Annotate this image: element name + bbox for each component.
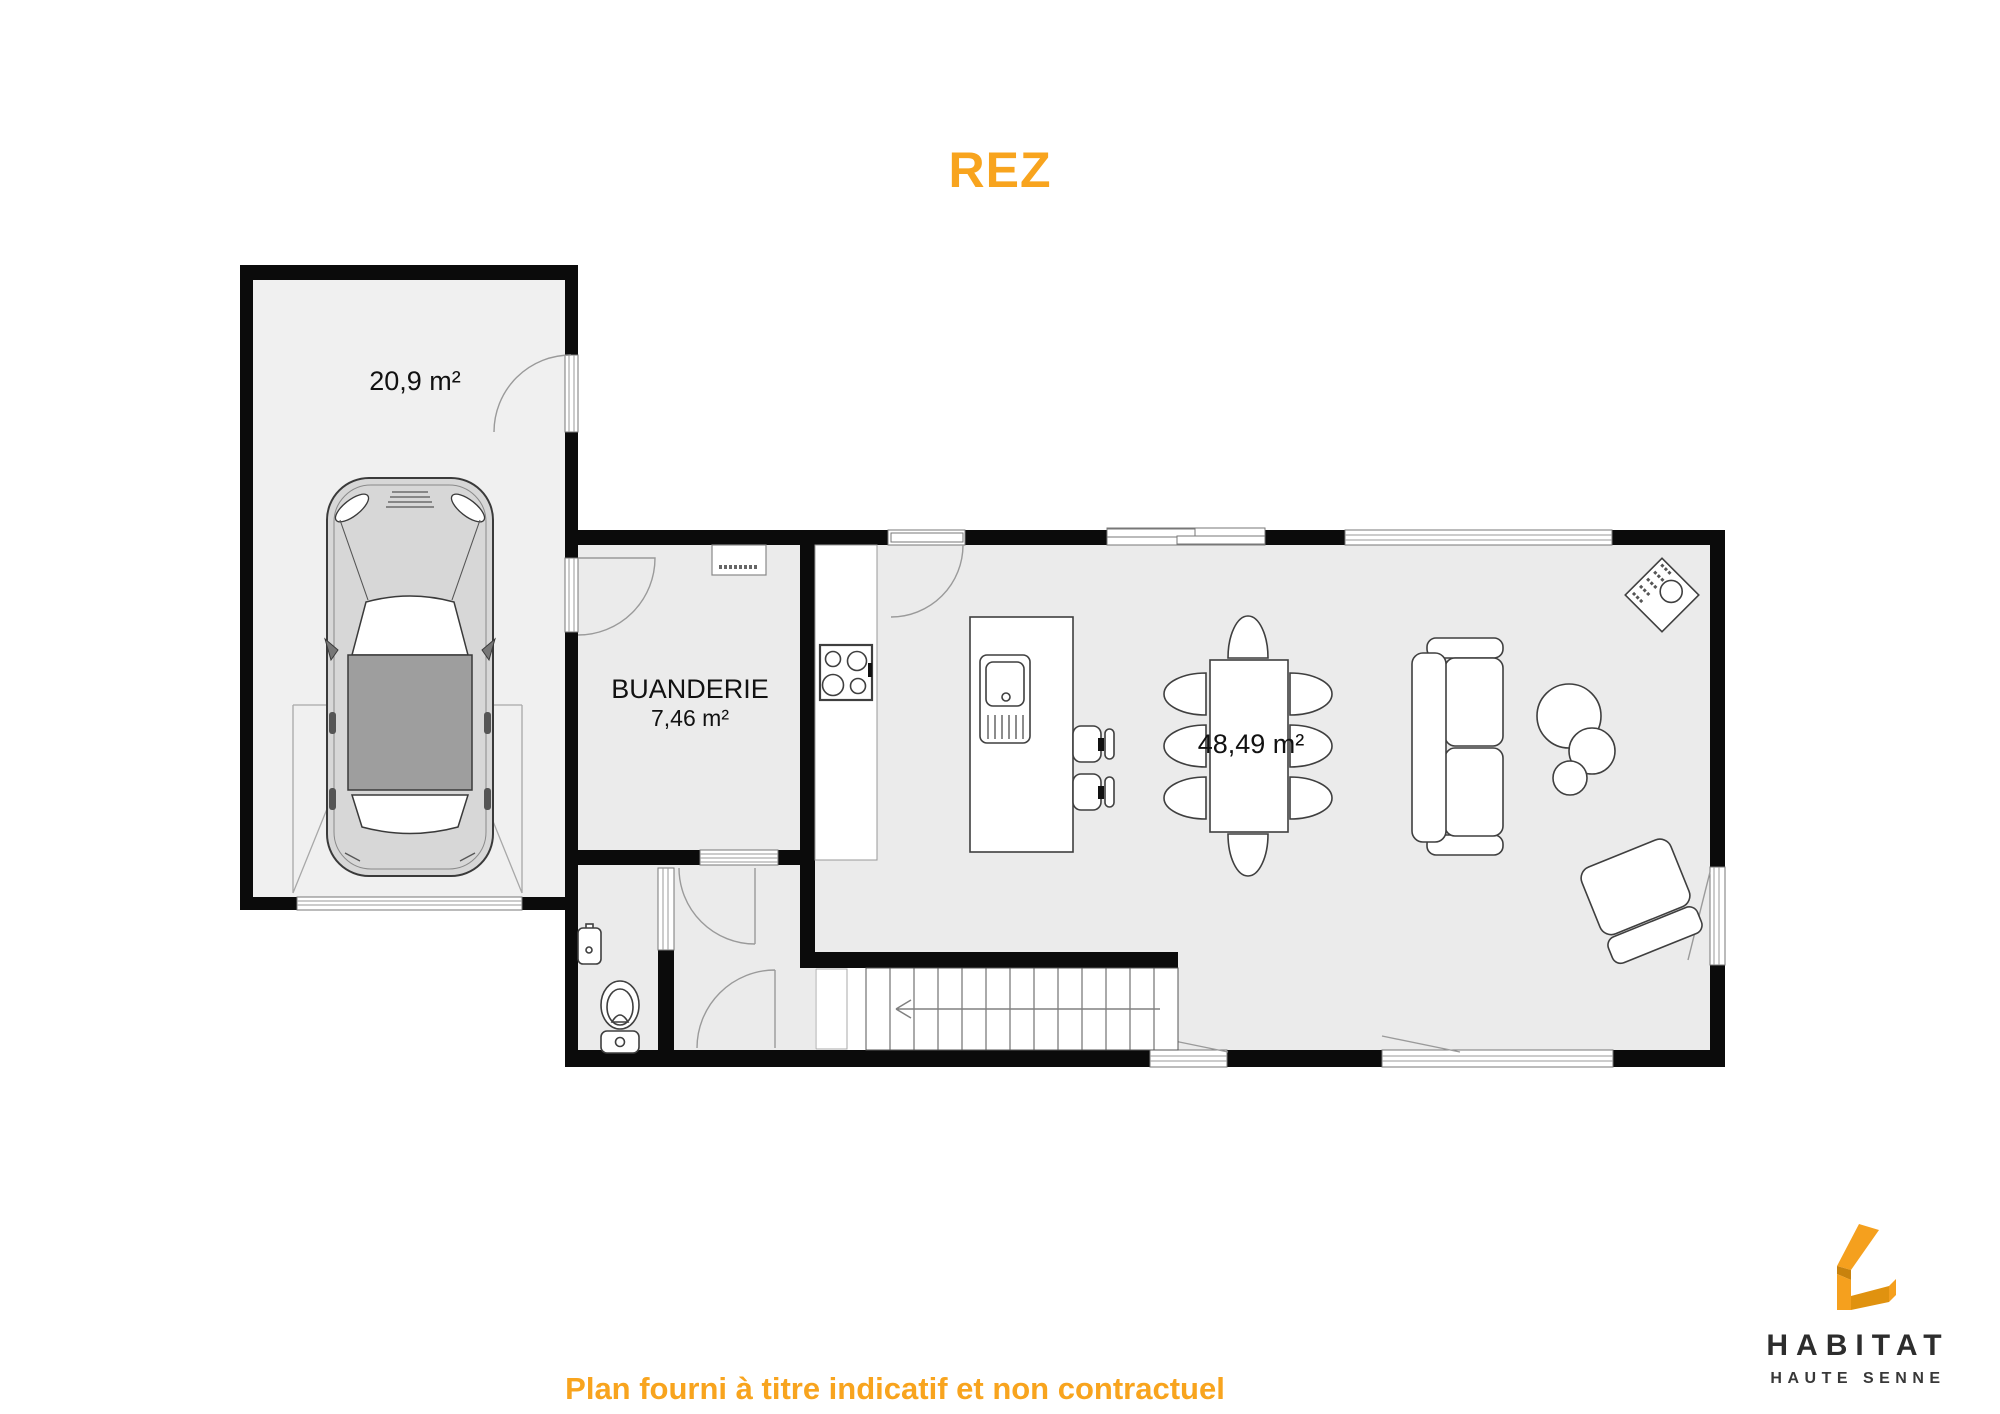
island-stool <box>1073 774 1114 810</box>
buanderie-area-label: 7,46 m² <box>651 705 729 731</box>
sofa-icon <box>1412 638 1503 855</box>
wc-door-opening <box>658 868 674 950</box>
floor-plan-page: REZ <box>0 0 2000 1414</box>
toilet-icon <box>601 981 639 1053</box>
disclaimer-text: Plan fourni à titre indicatif et non con… <box>0 1371 1790 1407</box>
car-icon <box>325 478 495 876</box>
living-area-label: 48,49 m² <box>1198 729 1305 759</box>
sink-icon <box>980 655 1030 743</box>
garage-area-label: 20,9 m² <box>369 366 461 396</box>
stove-icon <box>820 645 872 700</box>
island-stool <box>1073 726 1114 762</box>
floor-plan: 20,9 m² BUANDERIE 7,46 m² 48,49 m² <box>0 0 2000 1414</box>
sliding-window <box>1107 528 1265 545</box>
hand-basin-icon <box>578 924 601 964</box>
garage-door <box>297 897 522 910</box>
logo-subtitle: HAUTE SENNE <box>1748 1370 1968 1388</box>
staircase <box>815 968 1178 1050</box>
top-window <box>1345 530 1612 545</box>
kitchen-counter <box>815 545 877 860</box>
buanderie-name-label: BUANDERIE <box>611 674 769 704</box>
company-logo: HABITAT HAUTE SENNE <box>1748 1222 1968 1388</box>
habitat-logo-icon <box>1819 1222 1897 1312</box>
logo-name: HABITAT <box>1748 1329 1968 1363</box>
washing-machine-icon <box>712 545 766 575</box>
